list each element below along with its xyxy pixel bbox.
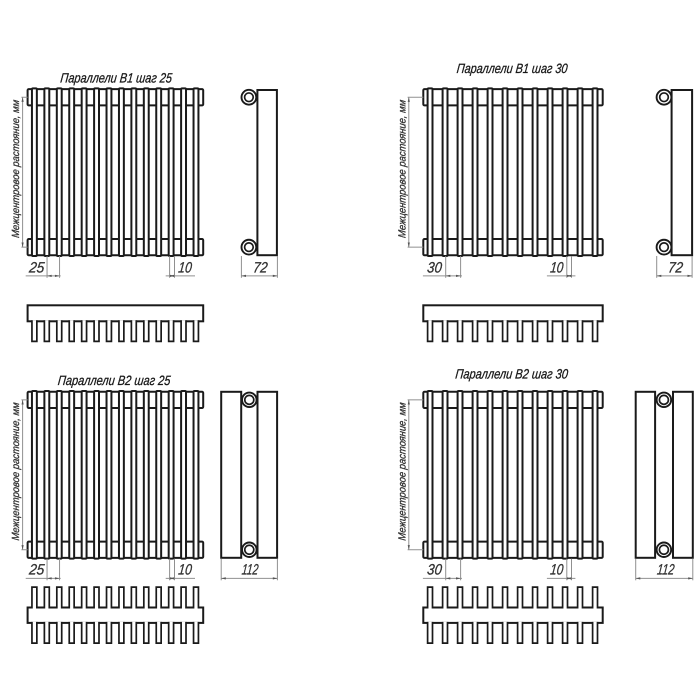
svg-text:25: 25 bbox=[27, 562, 45, 579]
svg-text:Параллели В1 шаг 25: Параллели В1 шаг 25 bbox=[60, 70, 173, 85]
svg-text:72: 72 bbox=[667, 259, 684, 276]
svg-text:25: 25 bbox=[27, 259, 45, 276]
svg-text:Межцентровое растояние, мм: Межцентровое растояние, мм bbox=[11, 402, 22, 541]
svg-text:Параллели В2 шаг 25: Параллели В2 шаг 25 bbox=[57, 373, 171, 388]
svg-text:112: 112 bbox=[241, 562, 260, 579]
svg-text:10: 10 bbox=[177, 562, 193, 579]
svg-text:30: 30 bbox=[426, 562, 443, 579]
svg-text:Межцентровое растояние, мм: Межцентровое растояние, мм bbox=[397, 402, 408, 541]
svg-text:Параллели В1 шаг 30: Параллели В1 шаг 30 bbox=[456, 61, 569, 76]
svg-text:112: 112 bbox=[656, 562, 676, 579]
svg-text:10: 10 bbox=[177, 259, 193, 276]
svg-text:72: 72 bbox=[252, 259, 269, 276]
svg-text:10: 10 bbox=[549, 259, 564, 276]
svg-text:Межцентровое растояние, мм: Межцентровое растояние, мм bbox=[397, 99, 408, 238]
svg-text:Параллели В2 шаг 30: Параллели В2 шаг 30 bbox=[455, 367, 569, 382]
svg-text:10: 10 bbox=[549, 562, 564, 579]
svg-text:30: 30 bbox=[426, 259, 443, 276]
svg-text:Межцентровое растояние, мм: Межцентровое растояние, мм bbox=[11, 99, 22, 238]
